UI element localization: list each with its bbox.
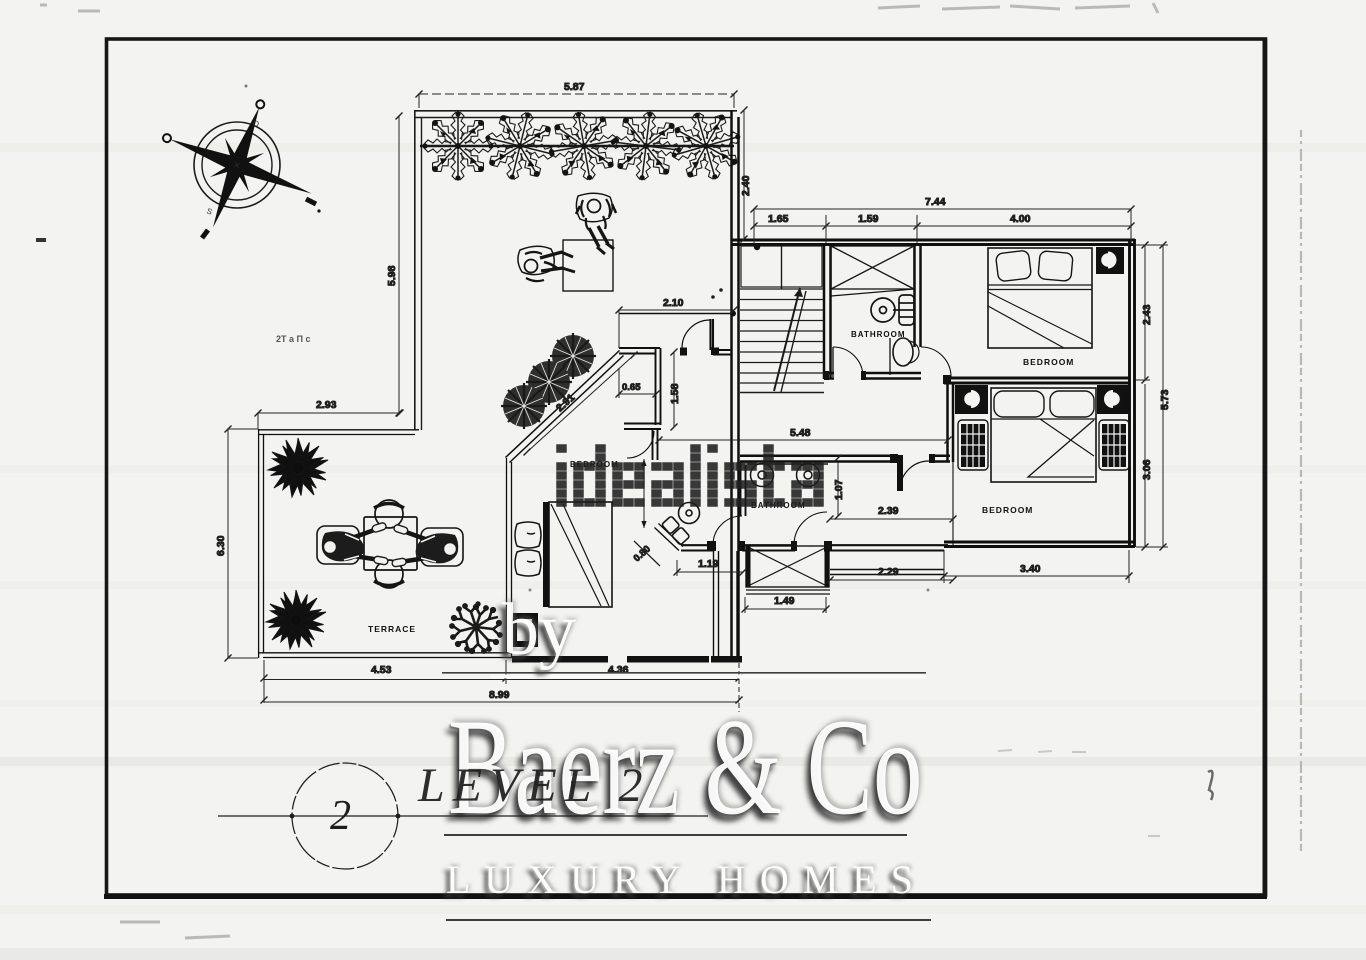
svg-text:2.93: 2.93 — [316, 399, 337, 411]
svg-text:5.98: 5.98 — [386, 265, 398, 286]
svg-text:BEDROOM: BEDROOM — [982, 505, 1033, 515]
svg-text:1.07: 1.07 — [833, 479, 845, 500]
svg-text:1.58: 1.58 — [669, 383, 681, 404]
svg-text:4.53: 4.53 — [371, 664, 392, 676]
svg-text:1.65: 1.65 — [768, 213, 789, 225]
svg-text:2.29: 2.29 — [878, 566, 899, 578]
svg-text:1.59: 1.59 — [858, 213, 879, 225]
svg-text:2.43: 2.43 — [1141, 304, 1153, 325]
svg-text:2.40: 2.40 — [740, 175, 752, 196]
svg-text:1.49: 1.49 — [774, 595, 795, 607]
svg-text:4.36: 4.36 — [608, 664, 629, 676]
svg-text:5.73: 5.73 — [1159, 389, 1171, 410]
svg-text:3.06: 3.06 — [1141, 459, 1153, 480]
svg-text:2.10: 2.10 — [663, 297, 684, 309]
svg-text:6.30: 6.30 — [215, 535, 227, 556]
svg-text:2.39: 2.39 — [878, 505, 899, 517]
svg-text:BATHROOM: BATHROOM — [851, 330, 906, 339]
svg-text:4.00: 4.00 — [1010, 213, 1031, 225]
svg-text:BEDROOM: BEDROOM — [1023, 357, 1074, 367]
svg-text:7.44: 7.44 — [925, 196, 946, 208]
svg-text:5.48: 5.48 — [790, 427, 811, 439]
svg-text:1.19: 1.19 — [698, 558, 719, 570]
svg-text:3.40: 3.40 — [1020, 563, 1041, 575]
svg-text:5.87: 5.87 — [564, 81, 585, 93]
svg-text:2T a Π c: 2T a Π c — [276, 334, 311, 344]
svg-text:0.65: 0.65 — [622, 382, 641, 393]
svg-text:TERRACE: TERRACE — [368, 624, 416, 634]
